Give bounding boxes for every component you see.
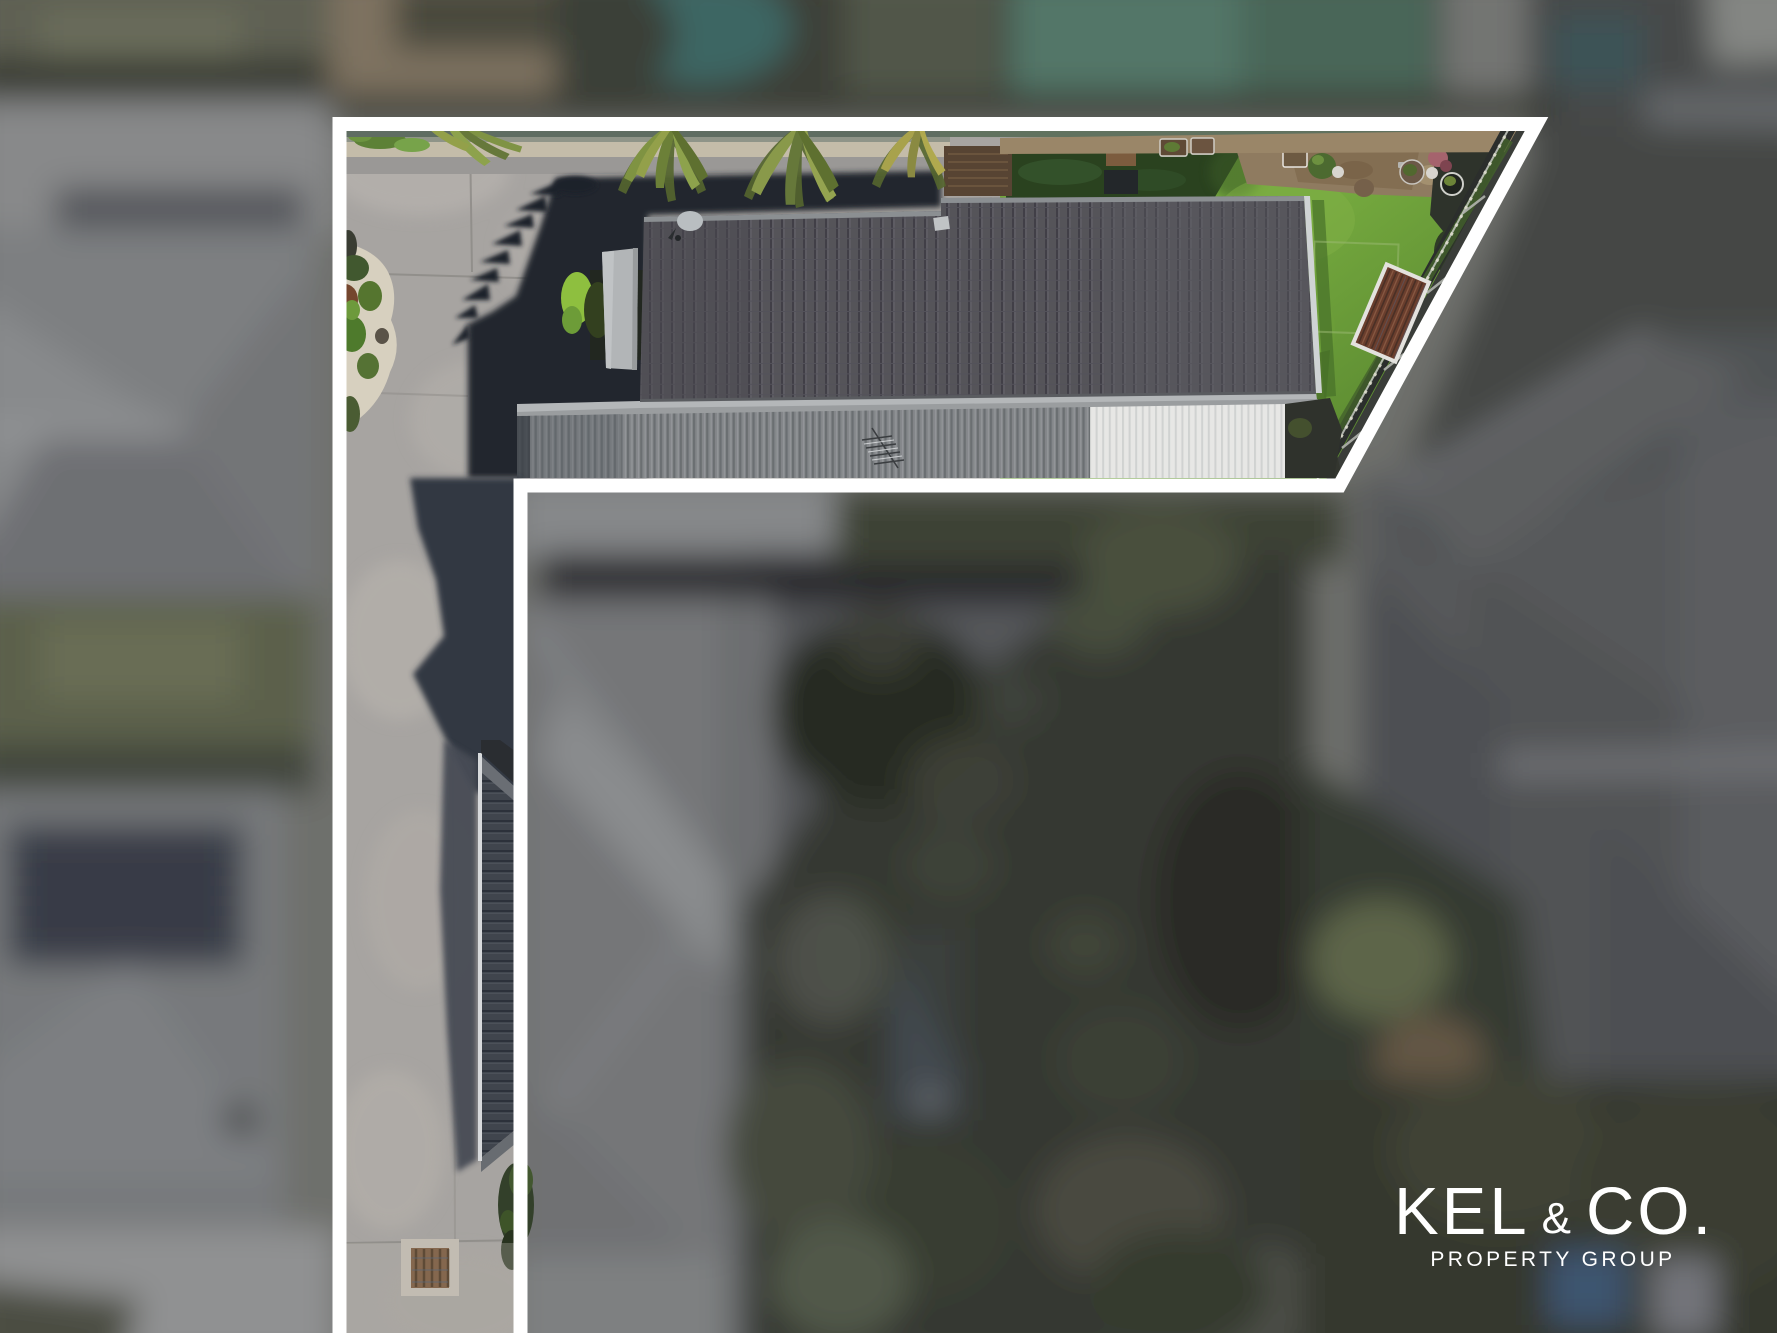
svg-text:PROPERTY GROUP: PROPERTY GROUP	[1430, 1248, 1675, 1271]
